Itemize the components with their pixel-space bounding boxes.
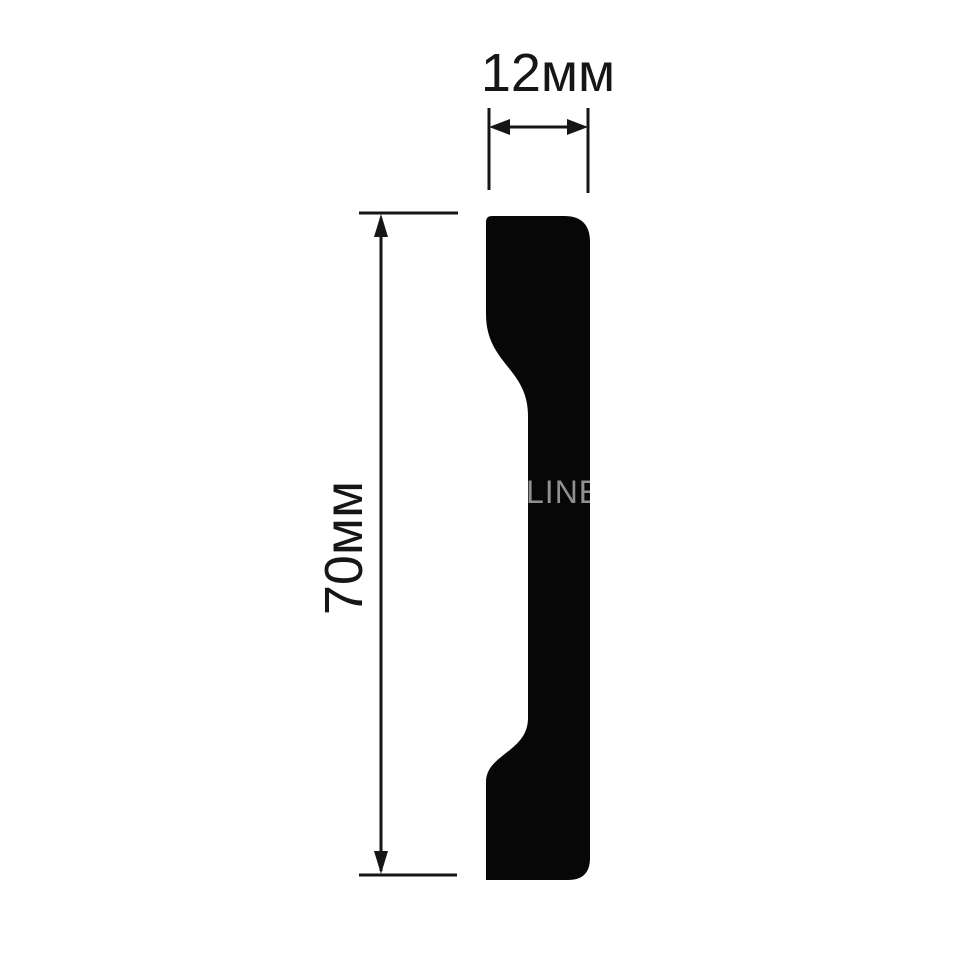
arrowhead-down-icon	[374, 851, 388, 874]
arrowhead-left-icon	[489, 119, 510, 135]
plinth-profile-shape	[486, 216, 590, 880]
plinth-dimension-diagram: LINE. O 12мм 70мм	[0, 0, 963, 970]
width-dimension	[489, 108, 588, 193]
width-dimension-label: 12мм	[481, 43, 615, 103]
arrowhead-right-icon	[567, 119, 588, 135]
arrowhead-up-icon	[374, 214, 388, 237]
drawing-canvas: LINE. O 12мм 70мм	[0, 0, 963, 970]
watermark: LINE. O	[366, 474, 611, 510]
watermark-text: LINE.	[526, 474, 611, 510]
height-dimension-label: 70мм	[314, 481, 374, 615]
